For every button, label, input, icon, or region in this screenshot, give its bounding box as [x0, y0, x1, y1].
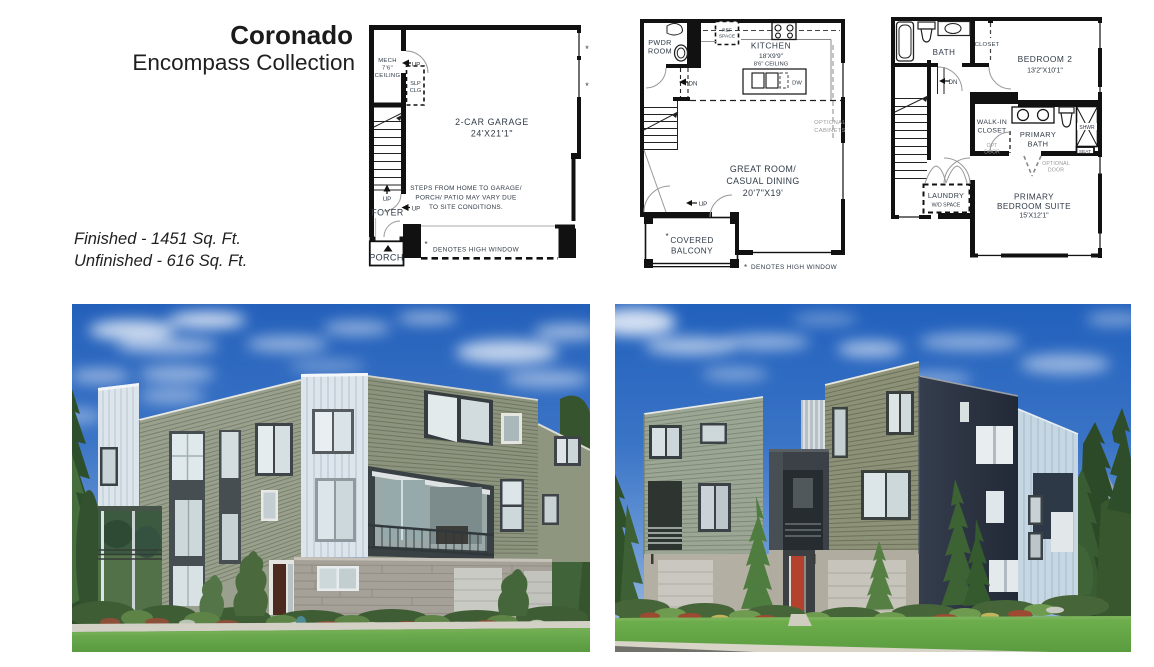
svg-text:W/D SPACE: W/D SPACE: [932, 203, 961, 209]
svg-text:SPACE: SPACE: [719, 34, 736, 40]
svg-text:SHWR: SHWR: [1079, 125, 1095, 131]
svg-text:2-CAR GARAGE: 2-CAR GARAGE: [455, 117, 529, 127]
svg-text:PORCH: PORCH: [369, 253, 404, 263]
svg-text:STEPS FROM HOME TO GARAGE/: STEPS FROM HOME TO GARAGE/: [410, 185, 522, 192]
svg-text:ROOM: ROOM: [648, 47, 672, 56]
svg-text:*: *: [585, 81, 589, 91]
svg-text:UP: UP: [412, 62, 421, 69]
svg-text:*: *: [744, 263, 747, 272]
svg-text:*: *: [665, 232, 668, 241]
svg-text:PRIMARY: PRIMARY: [1020, 130, 1056, 139]
svg-text:KITCHEN: KITCHEN: [751, 41, 791, 51]
svg-text:SEAT: SEAT: [1079, 149, 1091, 155]
svg-text:DOOR: DOOR: [984, 150, 1000, 156]
svg-text:15'X12'1": 15'X12'1": [1019, 213, 1049, 220]
svg-text:20'7"X19': 20'7"X19': [743, 188, 783, 198]
svg-text:24'X21'1": 24'X21'1": [471, 129, 513, 139]
svg-text:13'2"X10'1": 13'2"X10'1": [1027, 68, 1063, 75]
svg-text:TO SITE CONDITIONS.: TO SITE CONDITIONS.: [429, 204, 503, 211]
svg-text:*: *: [424, 240, 427, 249]
svg-text:BATH: BATH: [1028, 140, 1049, 149]
svg-text:SLP: SLP: [410, 81, 421, 87]
svg-text:OPTIONAL: OPTIONAL: [1042, 161, 1070, 167]
svg-text:CEILING: CEILING: [375, 73, 401, 79]
svg-text:GREAT ROOM/: GREAT ROOM/: [730, 164, 796, 174]
svg-text:MECH: MECH: [378, 58, 397, 64]
svg-text:CABINETS: CABINETS: [814, 128, 845, 134]
svg-text:CLG: CLG: [410, 88, 422, 94]
svg-text:DENOTES HIGH WINDOW: DENOTES HIGH WINDOW: [751, 264, 838, 271]
svg-text:PORCH/ PATIO MAY VARY DUE: PORCH/ PATIO MAY VARY DUE: [415, 195, 516, 202]
svg-text:7'6": 7'6": [382, 66, 393, 72]
svg-text:UP: UP: [699, 201, 708, 208]
svg-text:COVERED: COVERED: [670, 236, 713, 245]
svg-text:FOYER: FOYER: [371, 208, 403, 218]
svg-text:BATH: BATH: [933, 48, 956, 57]
svg-text:CASUAL DINING: CASUAL DINING: [726, 176, 799, 186]
svg-text:BEDROOM 2: BEDROOM 2: [1018, 54, 1073, 64]
svg-text:CLOSET: CLOSET: [978, 128, 1007, 135]
svg-text:DN: DN: [949, 79, 958, 86]
svg-text:DW: DW: [792, 81, 802, 87]
svg-text:UP: UP: [412, 206, 421, 213]
svg-text:18'X9'9": 18'X9'9": [759, 53, 784, 60]
svg-text:BALCONY: BALCONY: [671, 247, 713, 256]
svg-text:DN: DN: [689, 81, 698, 88]
svg-text:WALK-IN: WALK-IN: [977, 119, 1007, 126]
svg-text:8'6" CEILING: 8'6" CEILING: [754, 62, 789, 68]
svg-text:DENOTES HIGH WINDOW: DENOTES HIGH WINDOW: [433, 247, 520, 254]
svg-text:CLOSET: CLOSET: [975, 42, 1000, 48]
svg-text:PRIMARY: PRIMARY: [1014, 193, 1054, 202]
svg-text:DOOR: DOOR: [1048, 168, 1064, 174]
svg-text:LAUNDRY: LAUNDRY: [928, 191, 964, 200]
svg-text:UP: UP: [383, 196, 392, 203]
svg-text:BEDROOM SUITE: BEDROOM SUITE: [997, 202, 1071, 211]
svg-text:OPT: OPT: [987, 143, 998, 149]
svg-text:OPTIONAL: OPTIONAL: [814, 120, 846, 126]
svg-text:*: *: [585, 44, 589, 54]
svg-text:REF: REF: [722, 28, 732, 34]
